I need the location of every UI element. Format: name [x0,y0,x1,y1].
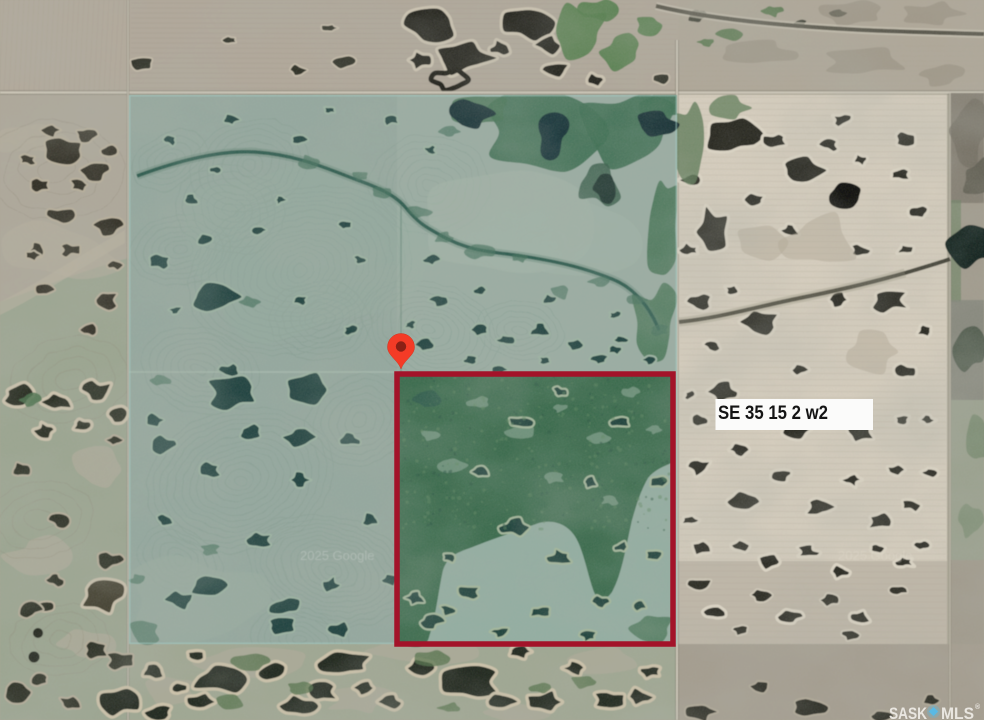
svg-text:®: ® [975,703,981,711]
svg-text:SASK: SASK [889,705,927,720]
svg-text:SE 35 15 2 w2: SE 35 15 2 w2 [718,402,828,424]
svg-text:MLS: MLS [941,705,974,720]
